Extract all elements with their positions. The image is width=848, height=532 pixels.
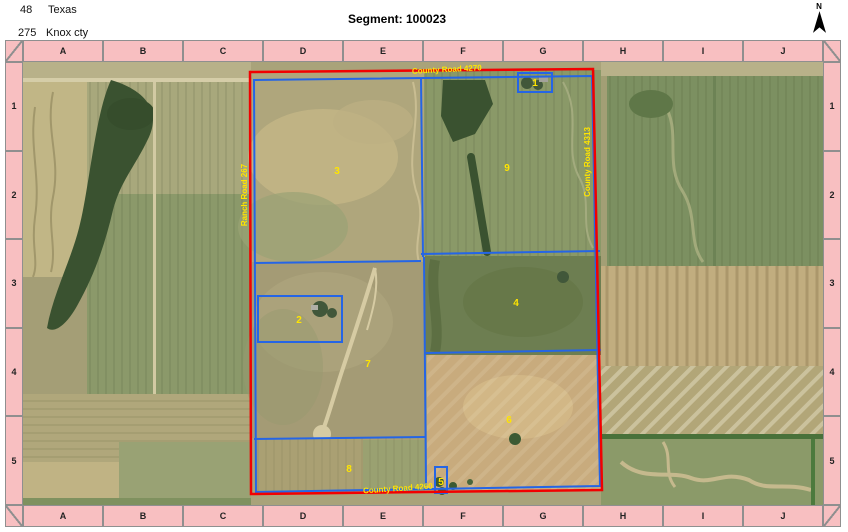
field-number-6: 6 — [506, 415, 512, 426]
imagery-segment — [238, 70, 601, 495]
field-number-8: 8 — [346, 464, 352, 475]
map-viewport[interactable]: County Road 4270Ranch Road 267County Roa… — [23, 62, 823, 505]
grid-row-label-4: 4 — [823, 328, 841, 417]
grid-row-label-2: 2 — [5, 151, 23, 240]
grid-col-label-d: D — [263, 505, 343, 527]
grid-col-label-h: H — [583, 40, 663, 62]
state-name: Texas — [48, 4, 77, 16]
grid-row-label-3: 3 — [823, 239, 841, 328]
grid-col-label-d: D — [263, 40, 343, 62]
grid-col-label-g: G — [503, 40, 583, 62]
grid-col-label-c: C — [183, 40, 263, 62]
grid-col-label-h: H — [583, 505, 663, 527]
grid-right-column: 12345 — [823, 62, 841, 505]
grid-col-label-b: B — [103, 505, 183, 527]
grid-left-column: 12345 — [5, 62, 23, 505]
road-label-ranch-road-267: Ranch Road 267 — [240, 163, 249, 226]
grid-row-label-4: 4 — [5, 328, 23, 417]
imagery-left — [23, 62, 251, 505]
field-number-9: 9 — [504, 163, 510, 174]
grid-row-label-2: 2 — [823, 151, 841, 240]
grid-corner — [5, 505, 23, 527]
grid-corner — [5, 40, 23, 62]
grid-corner — [823, 505, 841, 527]
grid-col-label-i: I — [663, 505, 743, 527]
grid-col-label-c: C — [183, 505, 263, 527]
road-label-county-road-4313: County Road 4313 — [583, 127, 592, 197]
frame-middle: 12345 — [5, 62, 841, 505]
north-label: N — [808, 2, 830, 11]
field-number-2: 2 — [296, 315, 302, 326]
state-line: 48Texas — [20, 4, 77, 16]
grid-col-label-g: G — [503, 505, 583, 527]
grid-row-label-3: 3 — [5, 239, 23, 328]
aerial-map[interactable]: County Road 4270Ranch Road 267County Roa… — [23, 62, 823, 505]
grid-col-label-e: E — [343, 40, 423, 62]
grid-col-label-i: I — [663, 40, 743, 62]
grid-col-label-j: J — [743, 505, 823, 527]
grid-col-label-f: F — [423, 40, 503, 62]
county-code: 275 — [18, 27, 38, 39]
grid-bottom-row: ABCDEFGHIJ — [5, 505, 841, 527]
grid-col-label-a: A — [23, 505, 103, 527]
north-arrow: N — [808, 2, 830, 38]
field-number-4: 4 — [513, 298, 519, 309]
field-number-3: 3 — [334, 166, 340, 177]
grid-corner — [823, 40, 841, 62]
field-number-1: 1 — [532, 78, 538, 89]
county-line: 275Knox cty — [18, 27, 88, 39]
grid-col-label-j: J — [743, 40, 823, 62]
grid-row-label-1: 1 — [5, 62, 23, 151]
grid-col-label-e: E — [343, 505, 423, 527]
field-number-5: 5 — [438, 477, 444, 488]
grid-col-label-b: B — [103, 40, 183, 62]
grid-top-row: ABCDEFGHIJ — [5, 40, 841, 62]
grid-row-label-5: 5 — [823, 416, 841, 505]
map-frame: ABCDEFGHIJ 12345 — [5, 40, 841, 527]
grid-row-label-1: 1 — [823, 62, 841, 151]
county-name: Knox cty — [46, 27, 88, 39]
field-number-7: 7 — [365, 359, 371, 370]
imagery-right — [601, 62, 823, 505]
state-code: 48 — [20, 4, 40, 16]
segment-title: Segment: 100023 — [348, 12, 446, 26]
grid-col-label-f: F — [423, 505, 503, 527]
grid-col-label-a: A — [23, 40, 103, 62]
grid-row-label-5: 5 — [5, 416, 23, 505]
north-arrow-icon — [813, 11, 826, 33]
